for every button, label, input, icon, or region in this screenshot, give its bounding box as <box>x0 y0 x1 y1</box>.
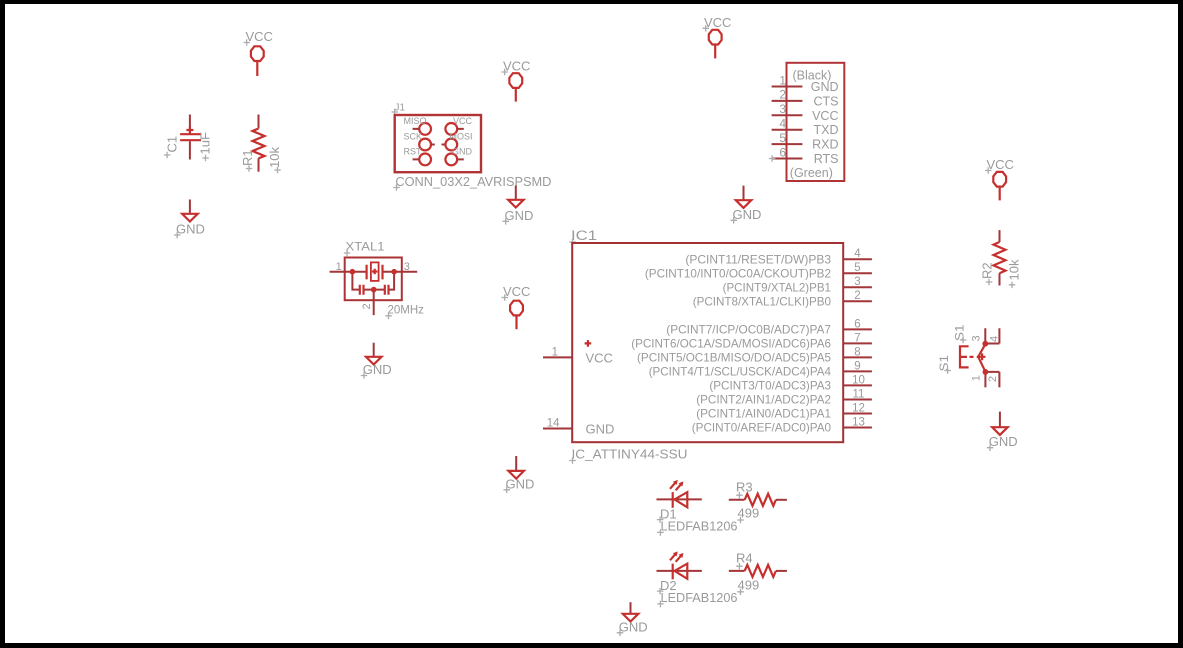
svg-text:S1: S1 <box>937 355 951 372</box>
svg-text:RST: RST <box>404 147 423 157</box>
svg-text:(PCINT6/OC1A/SDA/MOSI/ADC6)PA6: (PCINT6/OC1A/SDA/MOSI/ADC6)PA6 <box>631 336 831 350</box>
svg-text:8: 8 <box>854 346 860 358</box>
svg-text:VCC: VCC <box>503 284 530 299</box>
svg-text:13: 13 <box>852 416 865 428</box>
svg-text:4: 4 <box>989 336 1001 342</box>
svg-text:GND: GND <box>619 619 648 634</box>
svg-text:GND: GND <box>506 476 535 491</box>
svg-text:XTAL1: XTAL1 <box>346 241 385 253</box>
svg-text:7: 7 <box>854 332 860 344</box>
svg-text:RTS: RTS <box>814 152 839 166</box>
svg-text:12: 12 <box>852 402 865 414</box>
svg-text:5: 5 <box>779 131 786 145</box>
svg-text:VCC: VCC <box>987 157 1014 172</box>
svg-text:VCC: VCC <box>812 109 838 123</box>
svg-text:MOSI: MOSI <box>449 132 472 142</box>
svg-text:R1: R1 <box>240 149 255 166</box>
svg-text:VCC: VCC <box>586 350 613 365</box>
svg-text:3: 3 <box>404 261 410 273</box>
svg-text:11: 11 <box>853 388 865 400</box>
svg-text:(PCINT2/AIN1/ADC2)PA2: (PCINT2/AIN1/ADC2)PA2 <box>696 393 831 407</box>
svg-text:(PCINT1/AIN0/ADC1)PA1: (PCINT1/AIN0/ADC1)PA1 <box>696 407 831 421</box>
svg-text:LEDFAB1206: LEDFAB1206 <box>661 590 738 605</box>
svg-text:(PCINT11/RESET/DW)PB3: (PCINT11/RESET/DW)PB3 <box>685 252 831 266</box>
svg-text:VCC: VCC <box>246 29 273 44</box>
svg-text:(PCINT8/XTAL1/CLKI)PB0: (PCINT8/XTAL1/CLKI)PB0 <box>693 294 832 308</box>
svg-text:(PCINT7/ICP/OC0B/ADC7)PA7: (PCINT7/ICP/OC0B/ADC7)PA7 <box>666 322 831 336</box>
svg-text:IC1: IC1 <box>571 228 597 243</box>
svg-text:R3: R3 <box>736 480 753 495</box>
svg-text:IC_ATTINY44-SSU: IC_ATTINY44-SSU <box>572 447 688 462</box>
svg-text:GND: GND <box>586 421 615 436</box>
svg-text:3: 3 <box>854 276 860 288</box>
svg-text:9: 9 <box>854 360 860 372</box>
svg-text:10: 10 <box>852 374 865 386</box>
svg-text:1: 1 <box>336 261 342 273</box>
svg-text:C1: C1 <box>165 136 180 153</box>
svg-text:5: 5 <box>854 262 860 274</box>
svg-text:(PCINT0/AREF/ADC0)PA0: (PCINT0/AREF/ADC0)PA0 <box>692 421 832 435</box>
svg-text:2: 2 <box>854 290 860 302</box>
svg-text:1uF: 1uF <box>198 132 213 154</box>
svg-text:GND: GND <box>363 362 392 377</box>
svg-text:1: 1 <box>779 73 786 87</box>
svg-text:10k: 10k <box>1007 259 1022 280</box>
svg-text:1: 1 <box>552 346 558 358</box>
svg-text:VCC: VCC <box>503 59 530 74</box>
svg-text:2: 2 <box>987 376 999 382</box>
svg-text:4: 4 <box>779 117 786 131</box>
svg-text:(PCINT4/T1/SCL/USCK/ADC4)PA4: (PCINT4/T1/SCL/USCK/ADC4)PA4 <box>649 364 832 378</box>
svg-text:3: 3 <box>970 335 982 341</box>
svg-text:4: 4 <box>854 248 861 260</box>
svg-text:TXD: TXD <box>814 123 839 137</box>
svg-text:20MHz: 20MHz <box>388 304 425 316</box>
svg-text:MISO: MISO <box>404 116 427 126</box>
svg-text:6: 6 <box>854 318 860 330</box>
svg-text:S1: S1 <box>953 324 967 341</box>
svg-text:GND: GND <box>176 222 205 237</box>
svg-text:GND: GND <box>811 80 839 94</box>
svg-text:2: 2 <box>361 303 373 309</box>
svg-text:(PCINT3/T0/ADC3)PA3: (PCINT3/T0/ADC3)PA3 <box>709 378 831 392</box>
svg-text:R2: R2 <box>980 262 995 279</box>
svg-text:1: 1 <box>971 375 983 381</box>
svg-text:GND: GND <box>989 434 1018 449</box>
svg-text:GND: GND <box>733 207 762 222</box>
svg-text:VCC: VCC <box>453 116 473 126</box>
svg-text:SCK: SCK <box>404 132 423 142</box>
svg-text:CONN_03X2_AVRISPSMD: CONN_03X2_AVRISPSMD <box>395 174 551 189</box>
svg-text:(PCINT5/OC1B/MISO/DO/ADC5)PA5: (PCINT5/OC1B/MISO/DO/ADC5)PA5 <box>637 350 831 364</box>
svg-text:GND: GND <box>452 147 473 157</box>
svg-text:(PCINT10/INT0/OC0A/CKOUT)PB2: (PCINT10/INT0/OC0A/CKOUT)PB2 <box>645 266 831 280</box>
svg-text:6: 6 <box>779 145 786 159</box>
svg-text:2: 2 <box>779 88 786 102</box>
svg-text:VCC: VCC <box>704 15 731 30</box>
svg-text:GND: GND <box>505 208 534 223</box>
svg-text:3: 3 <box>779 102 786 116</box>
svg-text:10k: 10k <box>267 147 282 168</box>
svg-text:(Green): (Green) <box>790 166 833 180</box>
svg-text:14: 14 <box>547 417 560 429</box>
svg-text:LEDFAB1206: LEDFAB1206 <box>661 519 738 534</box>
svg-text:CTS: CTS <box>814 94 839 108</box>
svg-text:RXD: RXD <box>812 138 838 152</box>
svg-text:(PCINT9/XTAL2)PB1: (PCINT9/XTAL2)PB1 <box>723 280 832 294</box>
svg-text:R4: R4 <box>736 551 753 566</box>
